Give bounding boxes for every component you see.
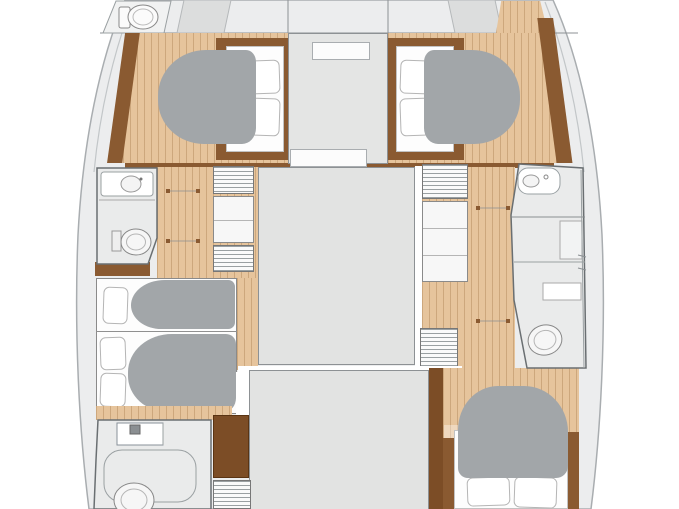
floor-plan-canvas: [0, 0, 679, 509]
port-forward-duvet: [158, 50, 256, 144]
port-wardrobe: [213, 415, 249, 478]
starboard-aft-pillow: [513, 476, 557, 508]
port-locker-forward: [213, 166, 254, 194]
saloon-cutout: [258, 167, 415, 365]
starboard-aft-inboard-wall: [429, 368, 443, 509]
port-aft-pillow: [99, 373, 126, 408]
port-companionway-steps: [213, 480, 251, 509]
starboard-companionway-steps: [420, 328, 458, 367]
port-cabinet: [213, 196, 254, 243]
starboard-forward-duvet: [424, 50, 520, 144]
gap-port-of-aft-cutout: [236, 372, 250, 417]
starboard-locker: [422, 164, 468, 199]
port-aft-sole-band: [96, 406, 232, 420]
aft-cockpit-cutout: [249, 370, 429, 509]
starboard-aft-duvet: [458, 386, 568, 478]
starboard-cabinet: [422, 201, 468, 282]
port-mid-sill: [95, 262, 150, 276]
port-aft-duvet-forward: [131, 280, 235, 329]
saloon-entry-step: [290, 149, 367, 167]
anchor-locker-starboard: [448, 0, 502, 33]
port-locker-aft: [213, 245, 254, 272]
port-bedside-sole: [237, 278, 258, 370]
port-aft-pillow: [102, 287, 128, 325]
anchor-locker-port: [177, 0, 231, 33]
berth-divider: [96, 331, 237, 332]
port-aft-pillow: [99, 337, 126, 371]
port-aft-duvet-aft: [128, 334, 236, 412]
foredeck-hatch: [312, 42, 370, 60]
port-bow-head: [103, 1, 171, 33]
starboard-aft-pillow: [467, 476, 511, 506]
